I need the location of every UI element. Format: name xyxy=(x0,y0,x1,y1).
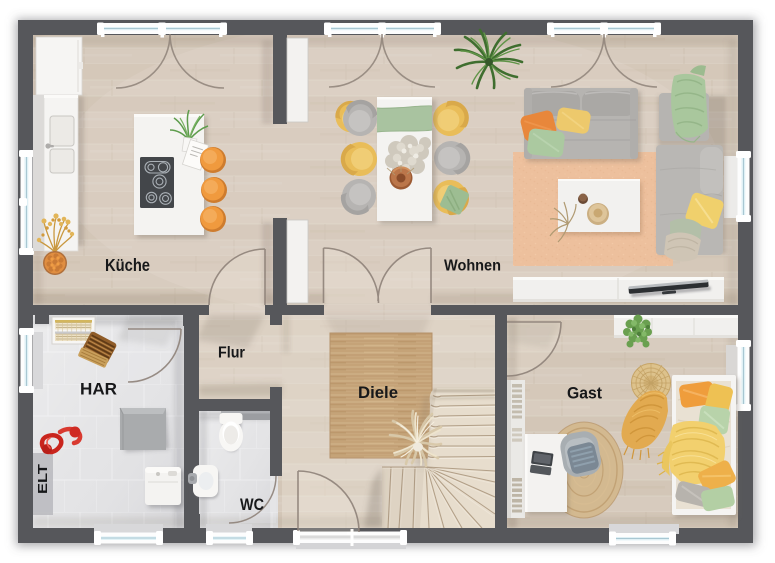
svg-text:Diele: Diele xyxy=(358,384,398,402)
svg-text:ELT: ELT xyxy=(36,464,50,494)
svg-text:Wohnen: Wohnen xyxy=(444,258,501,275)
svg-text:WC: WC xyxy=(240,496,264,514)
svg-text:Gast: Gast xyxy=(567,385,602,403)
svg-text:Küche: Küche xyxy=(105,255,150,275)
svg-text:Flur: Flur xyxy=(218,345,245,362)
svg-text:HAR: HAR xyxy=(80,381,117,399)
